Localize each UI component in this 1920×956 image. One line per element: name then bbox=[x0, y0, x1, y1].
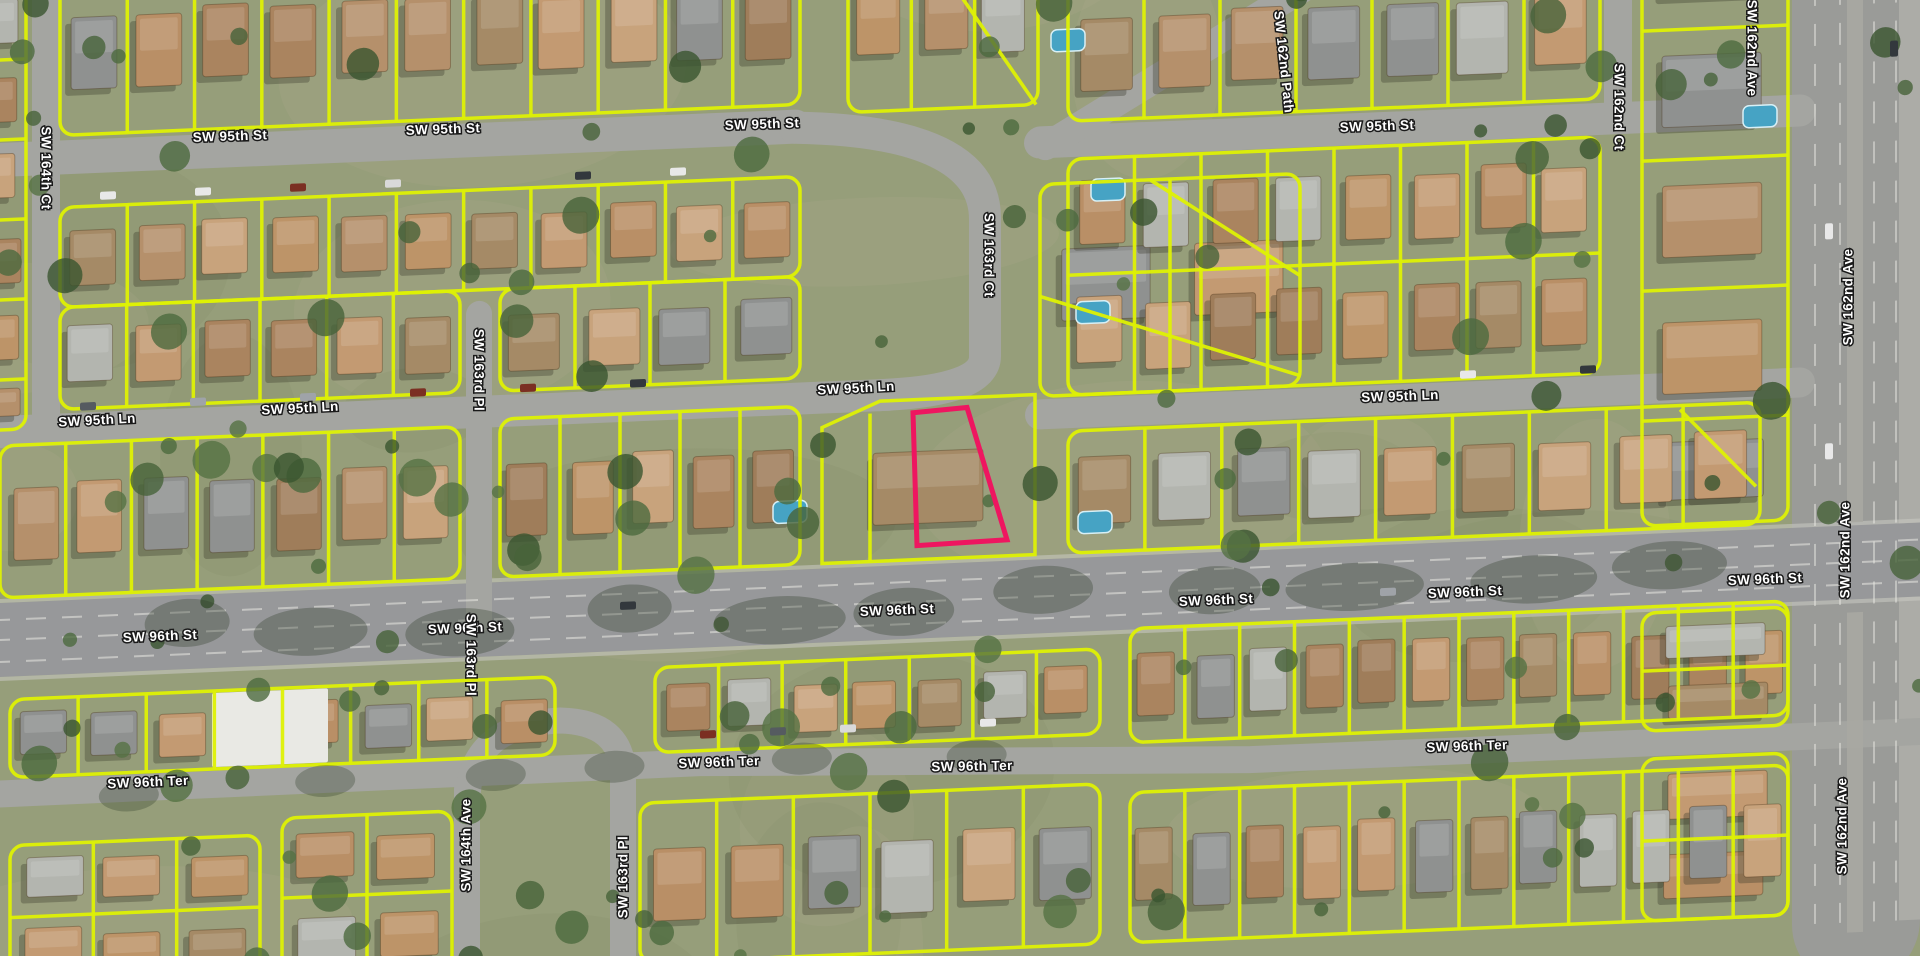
street-label: SW 163rd Pl bbox=[471, 329, 486, 411]
pool bbox=[1078, 510, 1112, 533]
street-label: SW 162nd Ct bbox=[1611, 64, 1626, 151]
street-label: SW 96th Ter bbox=[678, 753, 760, 771]
street-label: SW 163rd Pl bbox=[463, 614, 478, 696]
street-label: SW 95th St bbox=[1339, 117, 1414, 135]
street-label: SW 164th Ct bbox=[38, 126, 53, 209]
aerial-parcel-map[interactable]: SW 95th StSW 95th StSW 95th StSW 95th St… bbox=[0, 0, 1920, 956]
street-label: SW 95th St bbox=[724, 115, 799, 133]
street-label: SW 95th St bbox=[405, 120, 480, 138]
street-label: SW 164th Ave bbox=[459, 798, 474, 891]
street-label: SW 162nd Ave bbox=[1835, 777, 1850, 874]
street-label: SW 162nd Ave bbox=[1841, 248, 1856, 345]
street-label: SW 163rd Pl bbox=[616, 836, 631, 918]
street-label: SW 96th Ter bbox=[1426, 737, 1508, 755]
street-label: SW 96th Ter bbox=[931, 758, 1013, 774]
street-label: SW 163rd Ct bbox=[981, 213, 996, 297]
pool bbox=[1743, 105, 1777, 128]
street-label: SW 95th Ln bbox=[1361, 387, 1439, 405]
street-label: SW 95th St bbox=[192, 127, 267, 145]
street-label: SW 162nd Ave bbox=[1838, 501, 1853, 598]
street-label: SW 162nd Ave bbox=[1744, 0, 1759, 97]
map-canvas[interactable]: SW 95th StSW 95th StSW 95th StSW 95th St… bbox=[0, 0, 1920, 956]
white-roof bbox=[212, 688, 328, 767]
